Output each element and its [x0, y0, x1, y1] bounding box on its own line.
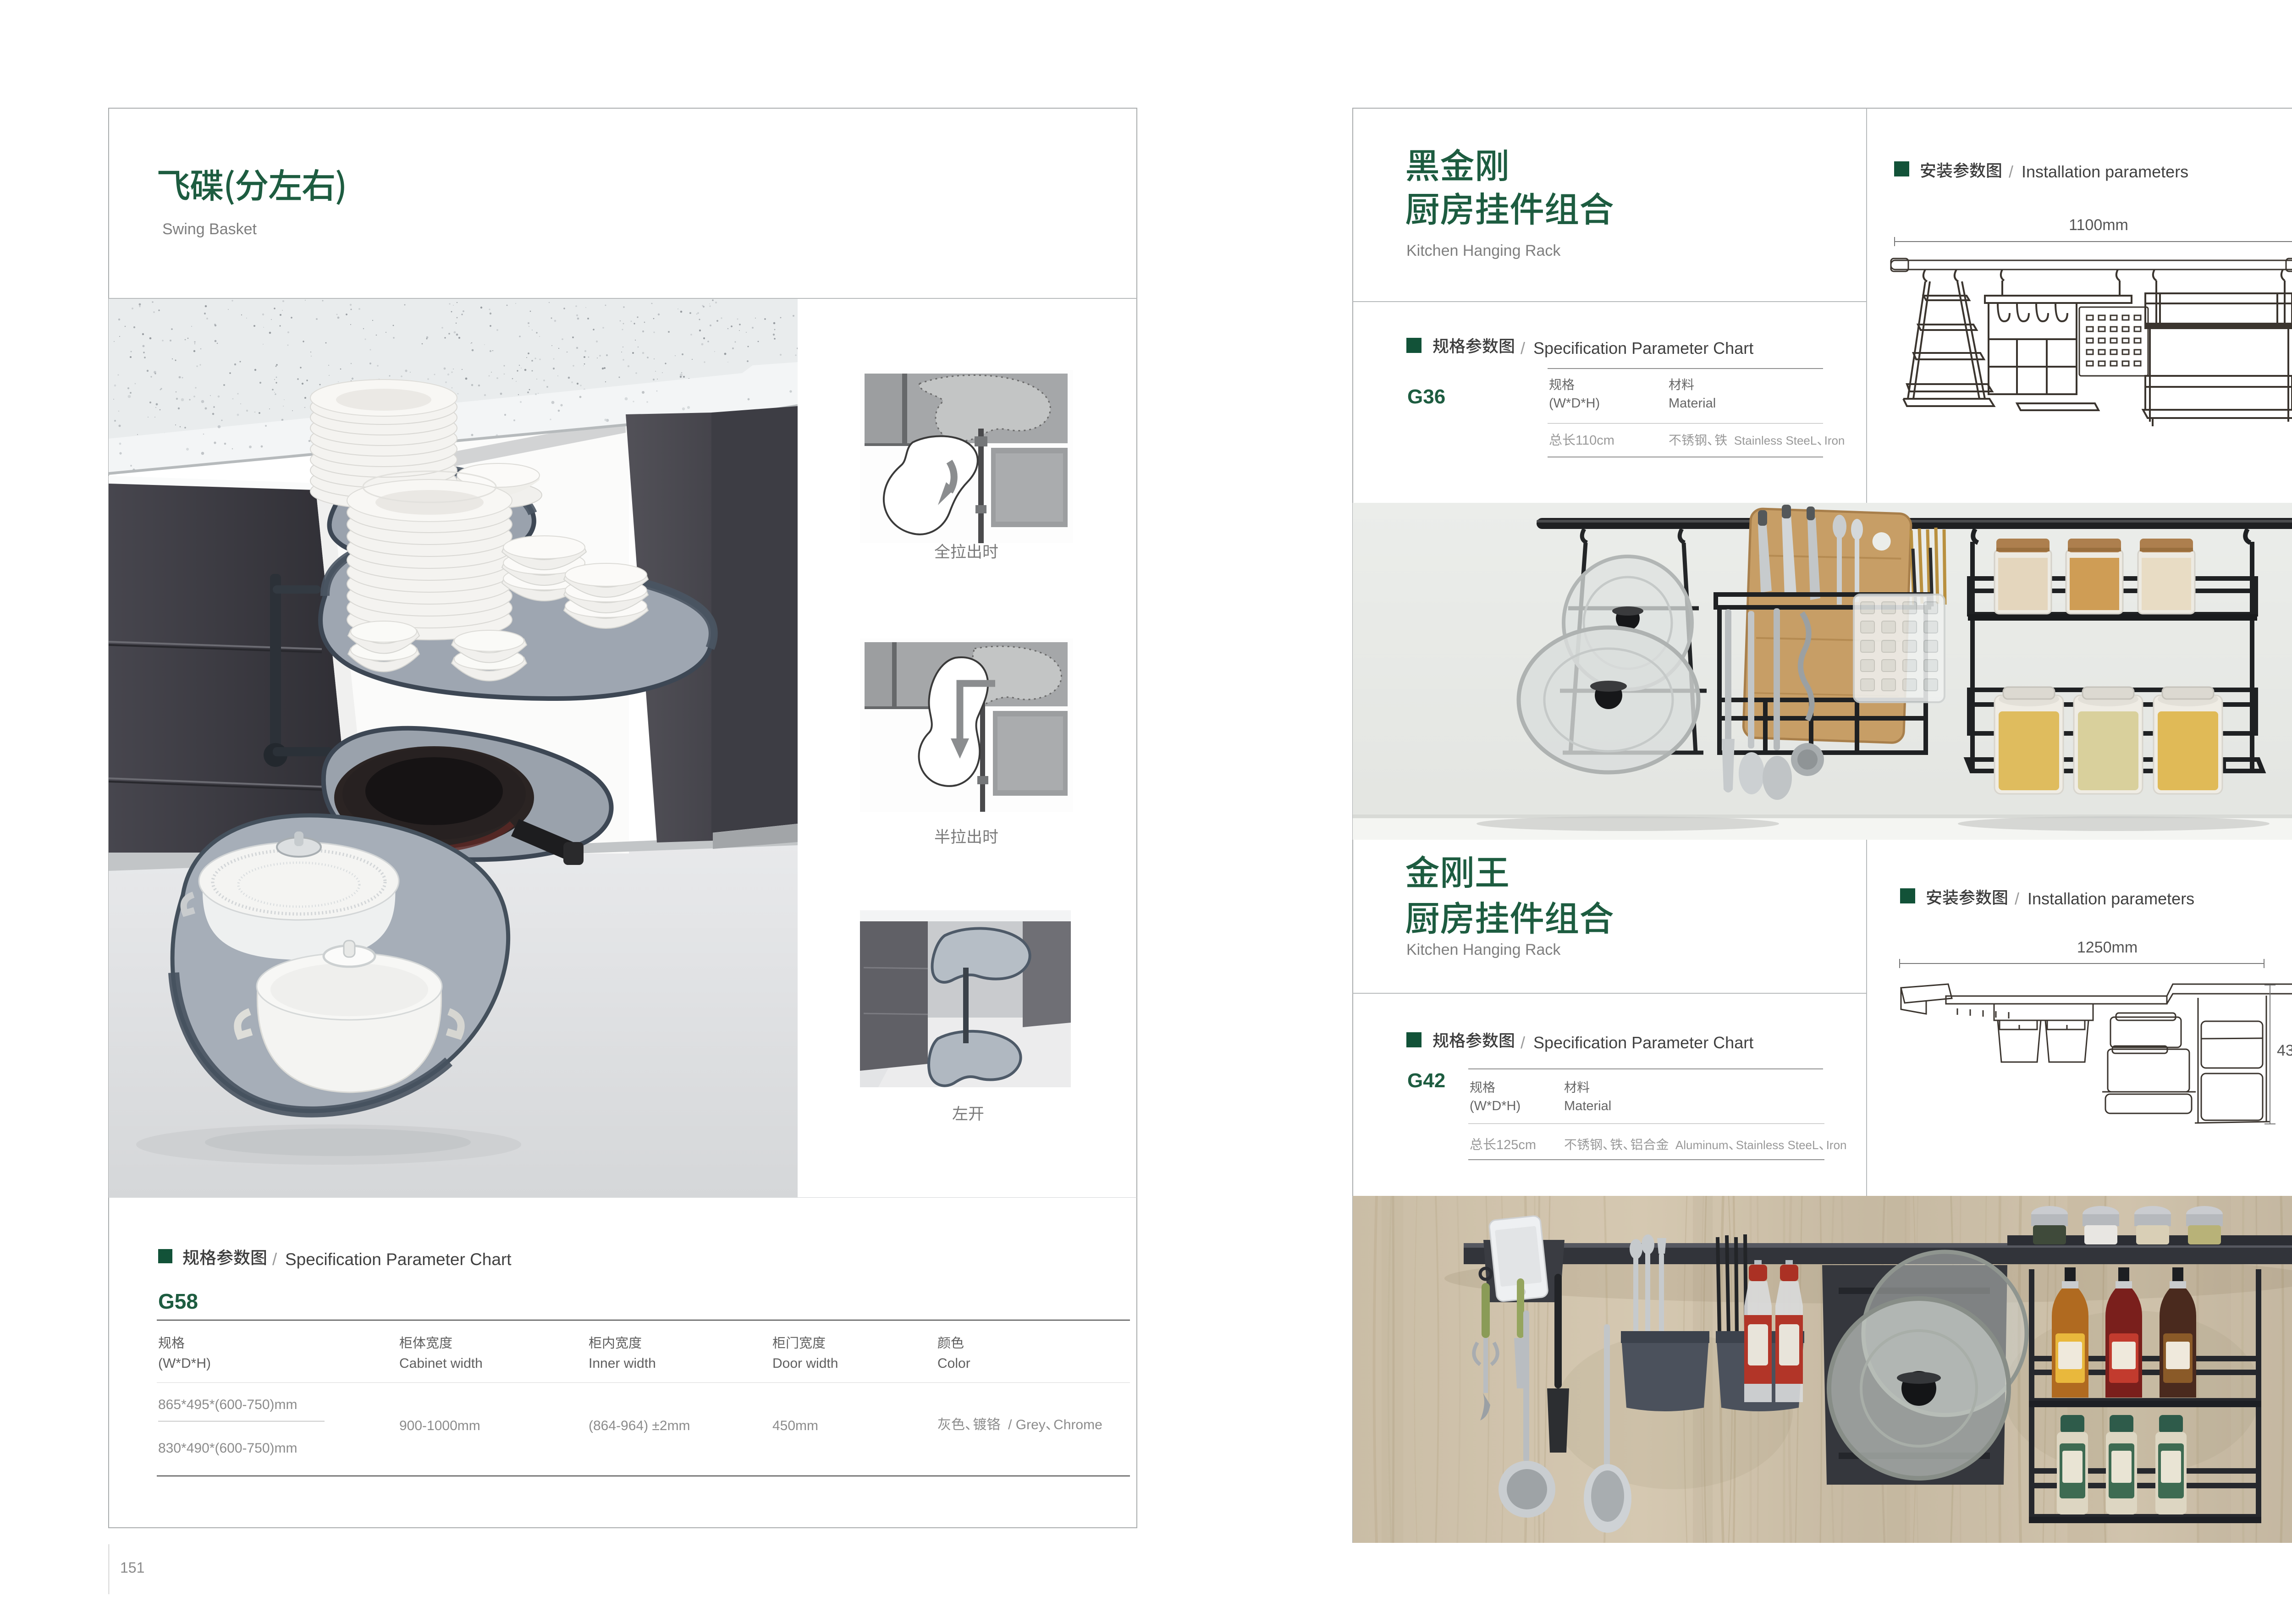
- svg-text:Chrome: Chrome: [1053, 1417, 1102, 1432]
- svg-text:Iron: Iron: [1826, 1138, 1847, 1152]
- svg-text:Stainless SteeL: Stainless SteeL: [1736, 1138, 1819, 1152]
- svg-text:1100mm: 1100mm: [2069, 216, 2128, 234]
- svg-text:430mm: 430mm: [2277, 1042, 2292, 1059]
- svg-text:Iron: Iron: [1824, 434, 1845, 447]
- svg-text:Stainless SteeL: Stainless SteeL: [1734, 434, 1817, 447]
- svg-text:/ Grey: / Grey: [1008, 1417, 1046, 1432]
- svg-text:Aluminum: Aluminum: [1675, 1138, 1729, 1152]
- svg-text:1250mm: 1250mm: [2077, 939, 2138, 956]
- svg-text:110cm: 110cm: [1576, 433, 1614, 448]
- svg-text:125cm: 125cm: [1496, 1138, 1536, 1152]
